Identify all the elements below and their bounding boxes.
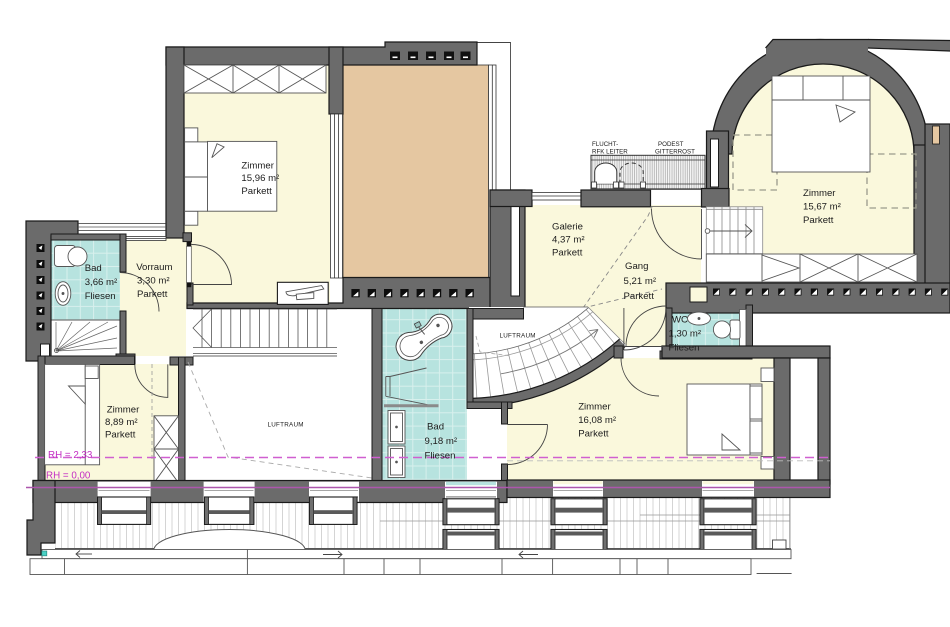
svg-text:Gang: Gang: [625, 261, 648, 272]
svg-text:Parkett: Parkett: [241, 186, 272, 197]
svg-text:Zimmer: Zimmer: [803, 188, 836, 199]
svg-text:LUFTRAUM: LUFTRAUM: [268, 422, 304, 429]
svg-text:WC: WC: [672, 315, 688, 326]
svg-text:GITTERROST: GITTERROST: [655, 149, 695, 156]
svg-text:Parkett: Parkett: [624, 291, 655, 302]
svg-text:LUFTRAUM: LUFTRAUM: [500, 333, 536, 340]
svg-text:RH = 0,00: RH = 0,00: [46, 471, 91, 482]
svg-text:Zimmer: Zimmer: [241, 160, 274, 171]
svg-text:RFK LEITER: RFK LEITER: [592, 149, 628, 156]
svg-text:Galerie: Galerie: [552, 222, 583, 233]
svg-text:1,30 m²: 1,30 m²: [669, 329, 702, 340]
svg-text:5,21 m²: 5,21 m²: [624, 276, 657, 287]
svg-text:9,18 m²: 9,18 m²: [425, 436, 458, 447]
svg-text:FLUCHT-: FLUCHT-: [592, 141, 618, 148]
svg-text:Zimmer: Zimmer: [578, 402, 611, 413]
svg-text:Parkett: Parkett: [578, 429, 609, 440]
svg-text:16,08 m²: 16,08 m²: [578, 415, 617, 426]
svg-text:RH = 2,33: RH = 2,33: [48, 450, 93, 461]
svg-text:3,30 m²: 3,30 m²: [137, 276, 170, 287]
svg-text:Fliesen: Fliesen: [425, 451, 456, 462]
svg-text:Parkett: Parkett: [552, 248, 583, 259]
svg-text:Fliesen: Fliesen: [85, 291, 116, 302]
svg-text:Vorraum: Vorraum: [136, 262, 172, 273]
svg-text:Parkett: Parkett: [803, 215, 834, 226]
svg-text:PODEST: PODEST: [658, 141, 684, 148]
svg-text:Fliesen: Fliesen: [669, 343, 700, 354]
svg-text:8,89 m²: 8,89 m²: [105, 417, 138, 428]
svg-text:4,37 m²: 4,37 m²: [552, 235, 585, 246]
svg-text:Parkett: Parkett: [137, 289, 168, 300]
svg-text:3,66 m²: 3,66 m²: [85, 277, 118, 288]
svg-text:Bad: Bad: [427, 422, 444, 433]
svg-text:Bad: Bad: [85, 263, 102, 274]
svg-text:Parkett: Parkett: [105, 429, 136, 440]
svg-text:15,67 m²: 15,67 m²: [803, 202, 842, 213]
svg-text:15,96 m²: 15,96 m²: [241, 173, 280, 184]
svg-text:Zimmer: Zimmer: [107, 404, 140, 415]
